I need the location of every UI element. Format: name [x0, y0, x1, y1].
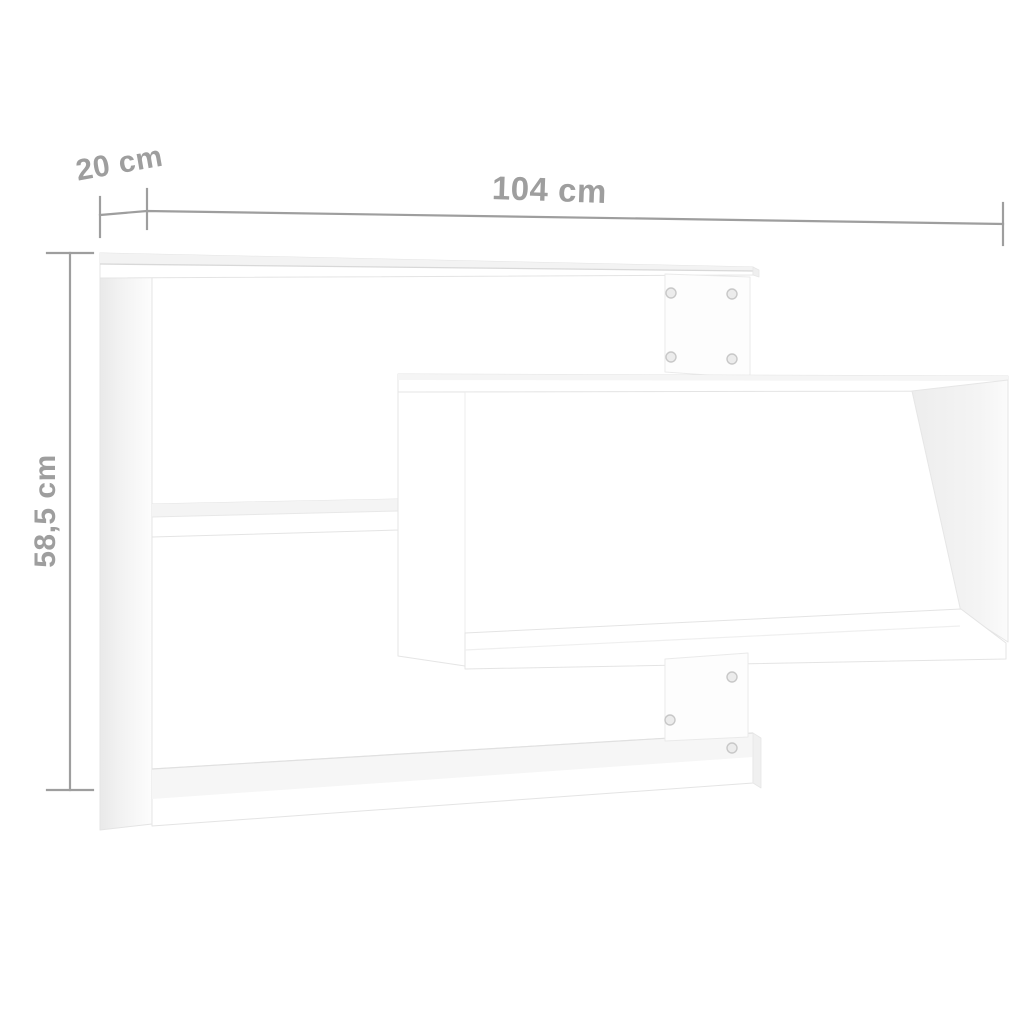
- depth-dimension-label: 20 cm: [73, 140, 165, 188]
- shelf-left-panel: [100, 253, 152, 830]
- product-dimension-image: 20 cm 104 cm 58,5 cm: [0, 0, 1024, 1024]
- upper-wall-bracket-panel: [665, 274, 750, 378]
- right-cube-right-panel: [912, 380, 1008, 642]
- screw-hole: [727, 289, 737, 299]
- board-end-cap: [753, 733, 761, 788]
- right-cube-top-board: [398, 374, 1008, 392]
- screw-hole: [666, 288, 676, 298]
- width-dimension-label: 104 cm: [491, 169, 607, 210]
- screw-hole: [666, 352, 676, 362]
- screw-hole: [727, 743, 737, 753]
- shelf-middle-shelf: [152, 499, 398, 537]
- right-cube-left-panel: [398, 392, 465, 666]
- lower-wall-bracket-panel: [665, 653, 748, 753]
- dimension-annotations: [47, 189, 1003, 790]
- board-end-cap: [753, 267, 759, 277]
- wall-shelf-dimension-diagram: 20 cm 104 cm 58,5 cm: [0, 0, 1024, 1024]
- shelf-bottom-board: [152, 733, 761, 826]
- height-dimension-label: 58,5 cm: [29, 454, 62, 568]
- screw-hole: [727, 672, 737, 682]
- shelf-top-board: [100, 253, 759, 278]
- screw-hole: [665, 715, 675, 725]
- screw-hole: [727, 354, 737, 364]
- shelf-illustration: [100, 253, 1008, 830]
